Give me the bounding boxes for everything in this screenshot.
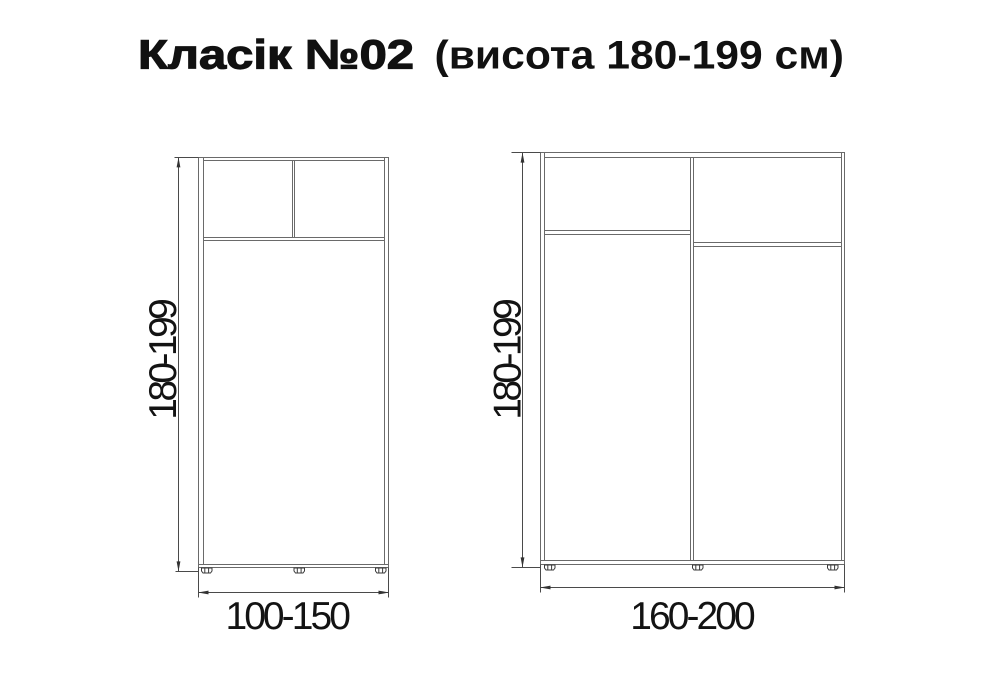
svg-text:180-199: 180-199	[142, 300, 185, 420]
svg-text:Класік №02(висота 180-199 см): Класік №02(висота 180-199 см)	[138, 32, 844, 78]
svg-text:160-200: 160-200	[630, 595, 755, 638]
svg-text:180-199: 180-199	[486, 300, 529, 420]
svg-text:100-150: 100-150	[225, 595, 350, 638]
